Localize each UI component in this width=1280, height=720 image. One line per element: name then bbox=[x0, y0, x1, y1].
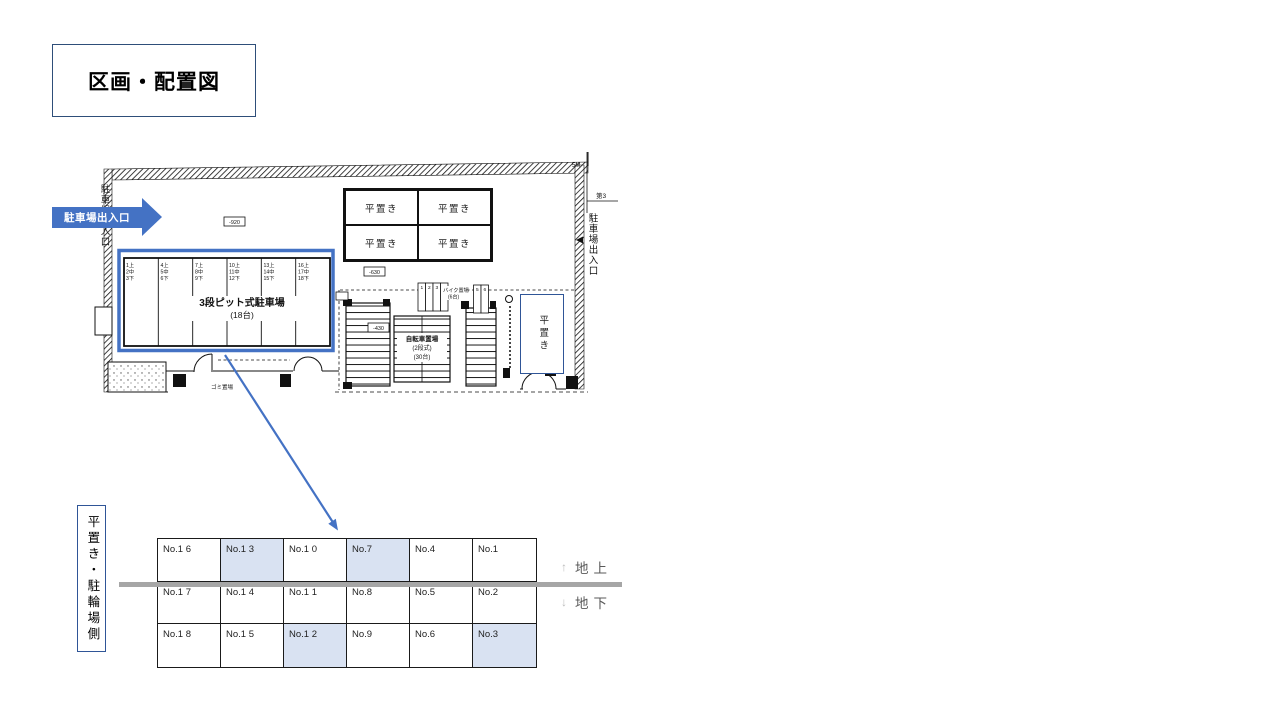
legend-label: 平置き・駐輪場側 bbox=[85, 515, 99, 643]
svg-text:6: 6 bbox=[483, 287, 486, 293]
underground-label: 地下 bbox=[575, 592, 612, 612]
svg-text:-920: -920 bbox=[229, 220, 240, 226]
svg-text:2: 2 bbox=[428, 285, 431, 291]
table-cell: No.1 6 bbox=[158, 539, 221, 582]
entrance-banner-body: 駐車場出入口 bbox=[52, 207, 142, 228]
svg-text:2中: 2中 bbox=[126, 268, 134, 276]
right-exit-label: 駐車場出入口 bbox=[586, 213, 596, 276]
table-cell: No.2 bbox=[473, 582, 536, 625]
table-cell: No.1 7 bbox=[158, 582, 221, 625]
flat-spot: 平置き bbox=[345, 225, 418, 260]
svg-text:(30台): (30台) bbox=[414, 353, 431, 361]
table-cell: No.1 0 bbox=[284, 539, 347, 582]
svg-text:-630: -630 bbox=[369, 270, 380, 276]
level-underground: ↓ 地下 bbox=[561, 592, 612, 612]
flat-spot-right-box: 平置き bbox=[520, 294, 564, 374]
legend-box: 平置き・駐輪場側 bbox=[77, 505, 106, 652]
level-above-ground: ↑ 地上 bbox=[561, 557, 612, 577]
column-mark bbox=[506, 296, 513, 303]
boundary-label: 第3 bbox=[596, 191, 607, 200]
ground-label: 地上 bbox=[575, 557, 612, 577]
svg-text:6下: 6下 bbox=[161, 275, 169, 282]
right-arrow-icon bbox=[142, 198, 162, 236]
svg-text:-430: -430 bbox=[373, 326, 384, 332]
svg-text:17中: 17中 bbox=[298, 268, 309, 276]
up-arrow-icon: ↑ bbox=[561, 560, 567, 574]
svg-text:8中: 8中 bbox=[195, 268, 203, 276]
table-cell: No.7 bbox=[347, 539, 410, 582]
svg-text:3下: 3下 bbox=[126, 275, 134, 282]
svg-text:1上: 1上 bbox=[126, 261, 134, 269]
wall-niche bbox=[95, 307, 112, 335]
pit-capacity: (18台) bbox=[230, 310, 254, 320]
entrance-banner-label: 駐車場出入口 bbox=[64, 210, 130, 225]
svg-text:3: 3 bbox=[435, 285, 438, 291]
table-cell: No.1 4 bbox=[221, 582, 284, 625]
bike-area-capacity: (6台) bbox=[448, 294, 459, 301]
svg-text:7上: 7上 bbox=[195, 261, 203, 269]
stairs-left bbox=[346, 303, 390, 386]
svg-text:(2段式): (2段式) bbox=[412, 344, 431, 352]
table-cell: No.8 bbox=[347, 582, 410, 625]
svg-text:4上: 4上 bbox=[161, 261, 169, 269]
svg-text:11中: 11中 bbox=[229, 268, 240, 276]
svg-text:5中: 5中 bbox=[161, 268, 169, 276]
table-cell: No.1 5 bbox=[221, 624, 284, 667]
table-cell: No.1 3 bbox=[221, 539, 284, 582]
svg-text:10上: 10上 bbox=[229, 261, 240, 269]
slot-table: No.1 6 No.1 3 No.1 0 No.7 No.4 No.1 No.1… bbox=[157, 538, 537, 668]
table-cell: No.1 8 bbox=[158, 624, 221, 667]
table-cell: No.3 bbox=[473, 624, 536, 667]
flat-parking-grid: 平置き 平置き 平置き 平置き bbox=[343, 188, 493, 262]
table-cell: No.6 bbox=[410, 624, 473, 667]
right-boundary bbox=[587, 152, 618, 213]
title-box: 区画・配置図 bbox=[52, 44, 256, 117]
svg-text:9下: 9下 bbox=[195, 275, 203, 282]
svg-text:5: 5 bbox=[476, 287, 479, 293]
flat-spot: 平置き bbox=[418, 225, 491, 260]
table-cell: No.5 bbox=[410, 582, 473, 625]
entrance-banner: 駐車場出入口 bbox=[52, 197, 162, 237]
table-cell: No.1 1 bbox=[284, 582, 347, 625]
svg-text:1: 1 bbox=[420, 285, 423, 291]
svg-text:自転車置場: 自転車置場 bbox=[406, 334, 439, 343]
svg-text:15下: 15下 bbox=[264, 275, 275, 282]
svg-text:13上: 13上 bbox=[264, 261, 275, 269]
scale-note: 5M bbox=[572, 163, 580, 169]
ground-level-line bbox=[119, 582, 622, 587]
pit-title: 3段ピット式駐車場 bbox=[199, 296, 285, 309]
svg-text:14中: 14中 bbox=[264, 268, 275, 276]
pit-parking-area: 1上 2中 3下 4上 5中 6下 7上 8中 9下 10上 11中 12下 1… bbox=[124, 258, 330, 346]
flat-spot-right-label: 平置き bbox=[537, 315, 547, 353]
table-cell: No.1 2 bbox=[284, 624, 347, 667]
down-arrow-icon: ↓ bbox=[561, 595, 567, 609]
flat-spot: 平置き bbox=[345, 190, 418, 225]
table-cell: No.9 bbox=[347, 624, 410, 667]
flat-spot: 平置き bbox=[418, 190, 491, 225]
page-title: 区画・配置図 bbox=[88, 66, 220, 96]
svg-text:18下: 18下 bbox=[298, 275, 309, 282]
table-cell: No.4 bbox=[410, 539, 473, 582]
bike-area-label: バイク置場 bbox=[443, 286, 469, 294]
svg-text:16上: 16上 bbox=[298, 261, 309, 269]
garbage-label: ゴミ置場 bbox=[211, 383, 234, 391]
stairs-right bbox=[466, 308, 496, 386]
table-cell: No.1 bbox=[473, 539, 536, 582]
svg-text:12下: 12下 bbox=[229, 275, 240, 282]
